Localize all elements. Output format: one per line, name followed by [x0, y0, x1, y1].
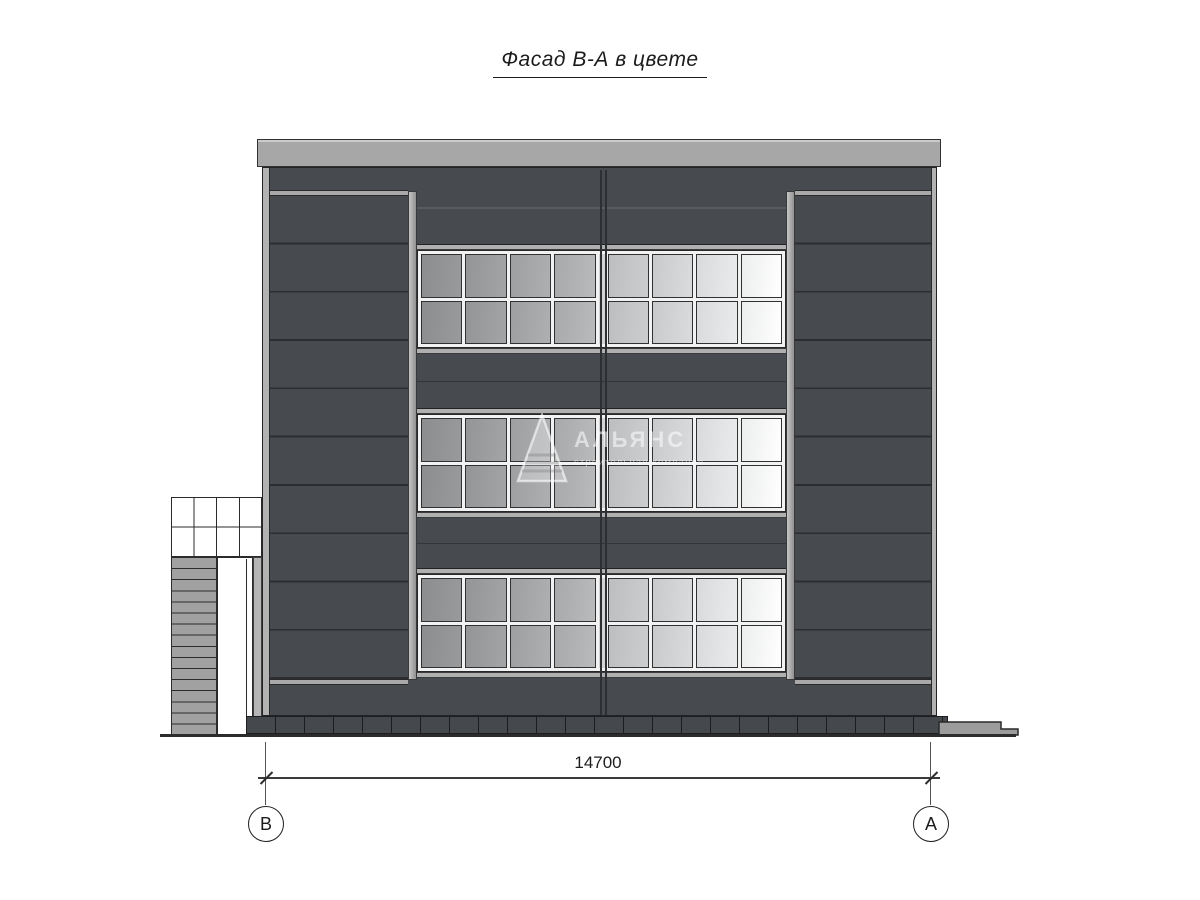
wall-section-left: [270, 168, 408, 716]
window-pane: [554, 301, 595, 345]
window-pane: [696, 578, 737, 622]
window-pane: [696, 254, 737, 298]
window-pane: [741, 418, 782, 462]
window-pane: [696, 625, 737, 669]
extension-line-left: [265, 742, 266, 805]
roof-cap: [257, 139, 941, 167]
window-pane: [465, 578, 506, 622]
window-pane: [696, 418, 737, 462]
window-pane: [421, 578, 462, 622]
dimension-line: [258, 777, 940, 779]
window-pane: [421, 418, 462, 462]
panel-joints-right: [795, 196, 931, 679]
window-pane: [652, 465, 693, 509]
window-pane: [510, 418, 551, 462]
corner-trim-left: [263, 168, 270, 716]
window-pane: [652, 625, 693, 669]
window-pane: [554, 418, 595, 462]
window-pane: [696, 465, 737, 509]
window-pane: [465, 625, 506, 669]
expansion-joint-line: [600, 170, 602, 715]
wall-return-strip: [253, 557, 262, 735]
window-pane: [652, 418, 693, 462]
window-pane: [741, 254, 782, 298]
metal-strip: [795, 679, 931, 685]
window-pane: [510, 254, 551, 298]
pilaster-right: [786, 191, 795, 680]
window-pane: [465, 254, 506, 298]
window-pane: [421, 301, 462, 345]
window-pane: [652, 578, 693, 622]
window-pane: [465, 301, 506, 345]
window-pane: [608, 578, 649, 622]
window-pane: [421, 254, 462, 298]
elevation-drawing-sheet: Фасад В-А в цвете: [0, 0, 1200, 900]
window-pane: [554, 465, 595, 509]
ground-line: [160, 734, 1016, 737]
plinth: [246, 716, 948, 734]
dimension-value: 14700: [398, 753, 798, 773]
facade-body: [262, 167, 937, 716]
window-pane: [608, 301, 649, 345]
axis-bubble-B: В: [248, 806, 284, 842]
window-pane: [608, 254, 649, 298]
drawing-title-text: Фасад В-А в цвете: [493, 48, 706, 78]
window-pane: [554, 254, 595, 298]
window-pane: [554, 625, 595, 669]
axis-label-A: А: [925, 814, 937, 835]
window-pane: [608, 465, 649, 509]
axis-bubble-A: А: [913, 806, 949, 842]
window-pane: [608, 418, 649, 462]
expansion-joint-line: [605, 170, 607, 715]
window-pane: [652, 254, 693, 298]
panel-joints-left: [270, 196, 408, 679]
window-pane: [510, 578, 551, 622]
wall-section-right: [795, 168, 931, 716]
window-pane: [465, 465, 506, 509]
window-pane: [510, 465, 551, 509]
window-pane: [554, 578, 595, 622]
extension-line-right: [930, 742, 931, 805]
window-pane: [741, 301, 782, 345]
window-pane: [741, 625, 782, 669]
axis-label-B: В: [260, 814, 272, 835]
window-pane: [421, 465, 462, 509]
entrance-stairs: [171, 557, 217, 735]
metal-strip: [270, 679, 408, 685]
door-frame-line: [246, 559, 247, 733]
window-pane: [741, 465, 782, 509]
window-pane: [465, 418, 506, 462]
window-pane: [510, 301, 551, 345]
window-pane: [741, 578, 782, 622]
entrance-canopy-glazing: [171, 497, 262, 557]
window-pane: [696, 301, 737, 345]
window-pane: [510, 625, 551, 669]
window-pane: [652, 301, 693, 345]
drawing-title: Фасад В-А в цвете: [0, 48, 1200, 78]
window-pane: [421, 625, 462, 669]
entrance-door: [217, 557, 253, 735]
window-pane: [608, 625, 649, 669]
pilaster-left: [408, 191, 417, 680]
corner-trim-right: [931, 168, 937, 716]
